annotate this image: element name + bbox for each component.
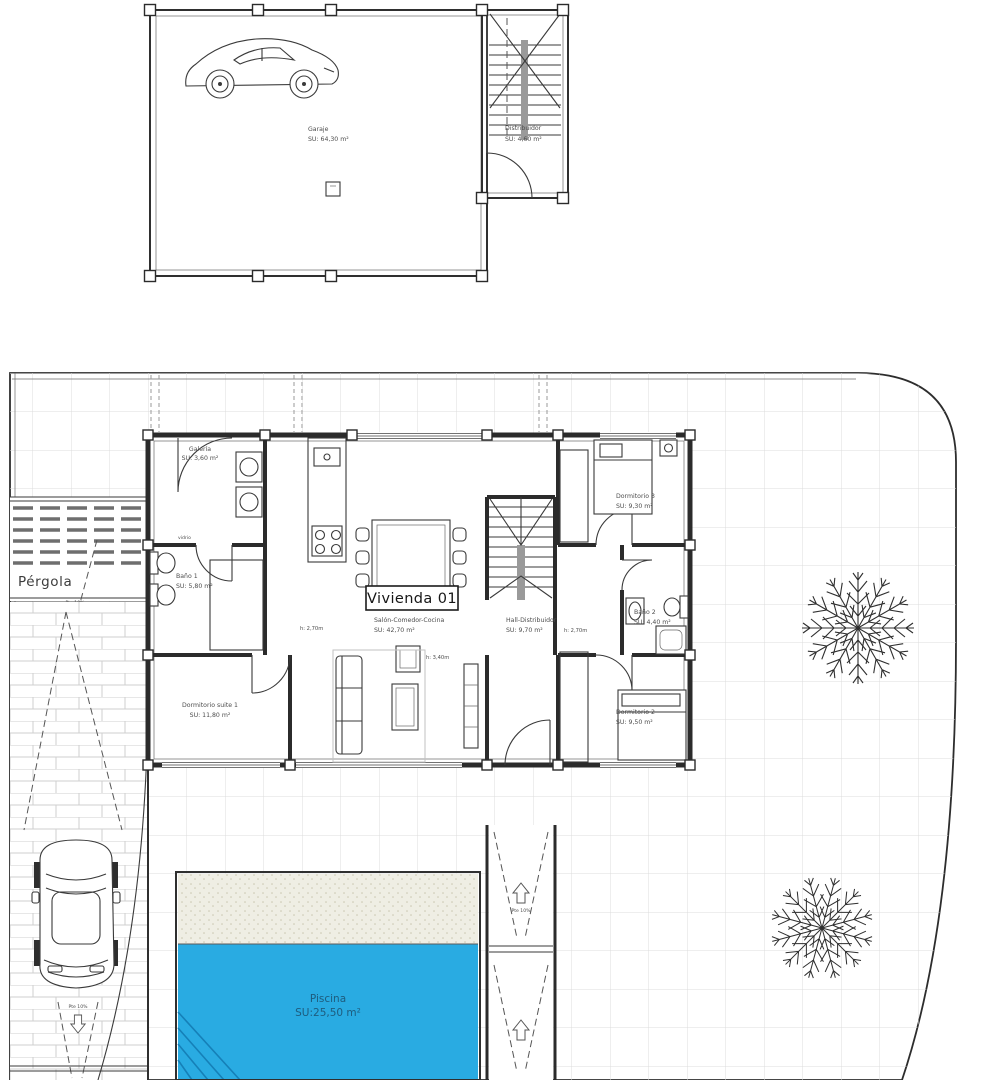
- stair-upper: [487, 14, 561, 198]
- suite1-area: SU: 11,80 m²: [190, 712, 231, 719]
- sofa: [336, 656, 362, 754]
- floor-plan-canvas: Pérgola Pte 10% Pte 10%: [0, 0, 983, 1080]
- bano1-name: Baño 1: [176, 573, 198, 580]
- floor-drain: [326, 182, 340, 196]
- pool-name: Piscina: [310, 993, 346, 1005]
- garage-area: SU: 64,30 m²: [308, 136, 349, 143]
- dorm3-area: SU: 9,30 m²: [616, 503, 653, 510]
- salon-name: Salón-Comedor-Cocina: [374, 616, 445, 624]
- pool-area-label: SU:25,50 m²: [295, 1007, 361, 1019]
- garage-walls: [150, 10, 487, 276]
- hall-name: Hall-Distribuidor: [506, 617, 557, 624]
- height-note: h: 3,40m: [426, 655, 449, 661]
- bano1-area: SU: 5,80 m²: [176, 583, 213, 590]
- cooktop: [312, 526, 342, 556]
- coffee-table: [392, 684, 418, 730]
- car-side-icon: [186, 39, 339, 98]
- bano2-name: Baño 2: [634, 609, 656, 616]
- height-note: h: 2,70m: [300, 626, 323, 632]
- driveway: Pte 10%: [10, 602, 148, 1080]
- project-tag: Vivienda 01: [367, 591, 457, 607]
- dorm3-name: Dormitorio 3: [616, 493, 655, 500]
- garage-name: Garaje: [308, 126, 329, 133]
- distributor-name: Distribuidor: [505, 125, 542, 132]
- ramp-slope-label: Pte 10%: [511, 908, 531, 914]
- galeria-area: SU: 3,60 m²: [182, 455, 219, 462]
- galeria-name: Galería: [189, 445, 211, 453]
- pergola-label: Pérgola: [18, 574, 72, 590]
- dorm2-area: SU: 9,50 m²: [616, 719, 653, 726]
- driveway-slope-label: Pte 10%: [68, 1004, 88, 1010]
- floor-plan-page: Pérgola Pte 10% Pte 10%: [0, 0, 983, 1080]
- distributor-area: SU: 4,60 m²: [505, 136, 542, 143]
- glass-note: vidrio: [178, 535, 191, 541]
- tv-sideboard: [464, 664, 478, 748]
- upper-floor-plan: Garaje SU: 64,30 m² Distribuidor SU: 4,6…: [145, 5, 569, 282]
- car-top-icon: [32, 840, 120, 988]
- dorm2-name: Dormitorio 2: [616, 709, 655, 716]
- height-note: h: 2,70m: [564, 628, 587, 634]
- columns-upper: [145, 5, 569, 282]
- salon-area: SU: 42,70 m²: [374, 627, 415, 634]
- suite1-name: Dormitorio suite 1: [182, 702, 238, 709]
- pool-area: Piscina SU:25,50 m²: [176, 872, 480, 1080]
- house: Galería SU: 3,60 m² vidrio Baño 1 SU: 5,…: [143, 430, 695, 770]
- room-dorm2: Dormitorio 2 SU: 9,50 m²: [616, 690, 686, 760]
- bano2-area: SU: 4,40 m²: [634, 619, 671, 626]
- site-plan: Pérgola Pte 10% Pte 10%: [10, 373, 956, 1080]
- walkway-ramp: Pte 10%: [487, 825, 555, 1080]
- hall-area: SU: 9,70 m²: [506, 627, 543, 634]
